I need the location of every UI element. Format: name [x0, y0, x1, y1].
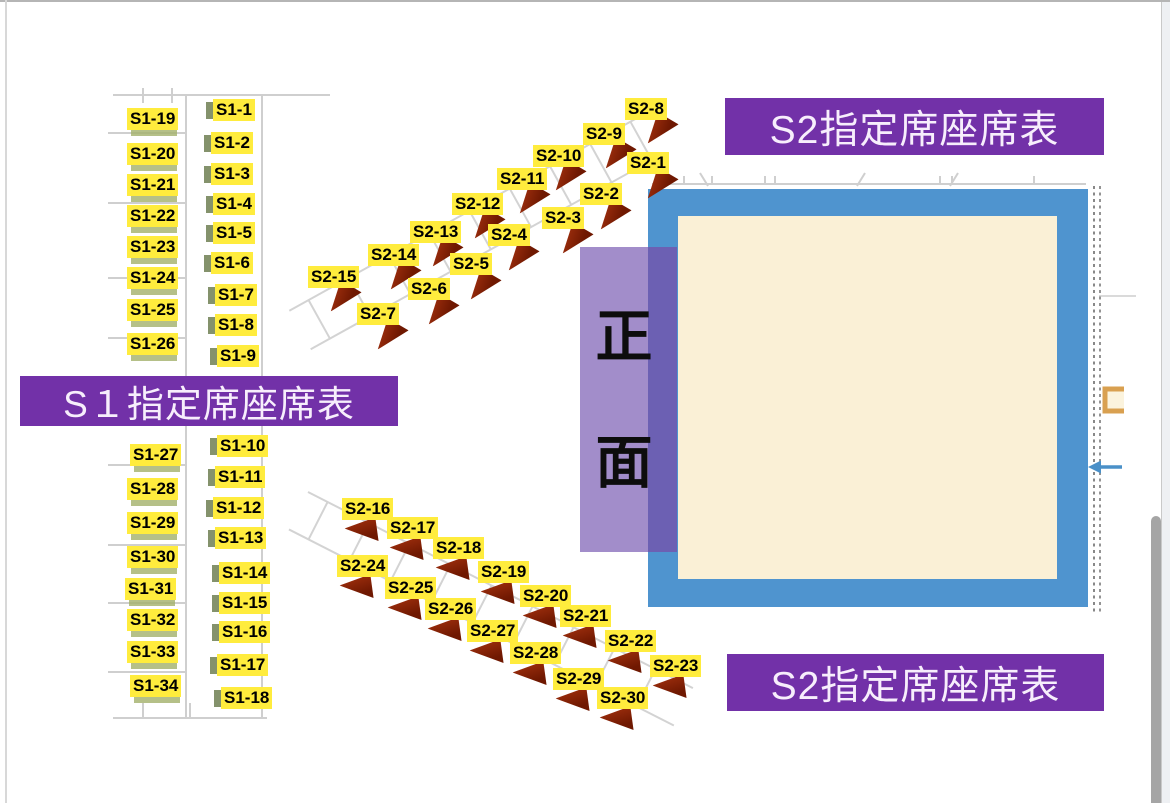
seat-label-s2-15: S2-15	[308, 266, 359, 288]
banner-s1-seating-chart: S１指定席座席表	[20, 376, 398, 426]
seat-label-s1-16: S1-16	[219, 621, 270, 643]
seat-label-s1-30: S1-30	[127, 546, 178, 568]
seat-label-s2-4: S2-4	[488, 224, 530, 246]
floorplan-seat-mark	[131, 129, 177, 136]
seat-label-s1-18: S1-18	[221, 687, 272, 709]
floorplan-seat-mark	[131, 354, 177, 361]
floorplan-seat-mark	[134, 465, 180, 472]
seat-label-s2-28: S2-28	[510, 642, 561, 664]
banner-s2-seating-chart-top: S2指定席座席表	[725, 98, 1104, 155]
seat-label-s2-19: S2-19	[478, 561, 529, 583]
seat-label-s2-18: S2-18	[433, 537, 484, 559]
floorplan-seat-mark	[131, 533, 177, 540]
seat-label-s2-10: S2-10	[533, 145, 584, 167]
seat-label-s2-26: S2-26	[425, 598, 476, 620]
seat-label-s2-25: S2-25	[385, 577, 436, 599]
seat-label-s1-31: S1-31	[125, 578, 176, 600]
seat-label-s1-23: S1-23	[127, 236, 178, 258]
seat-label-s1-21: S1-21	[127, 174, 178, 196]
seat-label-s2-23: S2-23	[650, 655, 701, 677]
floorplan-seat-mark	[131, 567, 177, 574]
seat-label-s1-4: S1-4	[213, 193, 255, 215]
seat-label-s1-15: S1-15	[219, 592, 270, 614]
seating-chart-page: 正 面 S1-19S1-20S1-21S1-22S1-23S1-24S1-25S…	[0, 0, 1170, 803]
floorplan-seat-mark	[131, 288, 177, 295]
seat-label-s1-32: S1-32	[127, 609, 178, 631]
seat-label-s1-20: S1-20	[127, 143, 178, 165]
seat-label-s2-7: S2-7	[357, 303, 399, 325]
floorplan-seat-mark	[131, 164, 177, 171]
seat-label-s1-24: S1-24	[127, 267, 178, 289]
floorplan-seat-mark	[131, 662, 177, 669]
seat-label-s1-3: S1-3	[211, 163, 253, 185]
seat-label-s1-29: S1-29	[127, 512, 178, 534]
seat-label-s1-6: S1-6	[211, 252, 253, 274]
seat-label-s1-33: S1-33	[127, 641, 178, 663]
floorplan-seat-mark	[131, 320, 177, 327]
banner-s2-seating-chart-bottom: S2指定席座席表	[727, 654, 1104, 711]
seat-label-s1-1: S1-1	[213, 99, 255, 121]
top-edge-line	[0, 0, 1170, 2]
seat-label-s2-9: S2-9	[583, 123, 625, 145]
entry-arrow-icon	[1088, 461, 1122, 474]
floorplan-seat-mark	[131, 257, 177, 264]
seat-label-s2-1: S2-1	[627, 152, 669, 174]
dotted-boundary-line	[1094, 186, 1100, 612]
stage-floor	[678, 216, 1057, 579]
door-icon	[1105, 389, 1124, 411]
seat-label-s1-9: S1-9	[217, 345, 259, 367]
seat-label-s1-8: S1-8	[215, 314, 257, 336]
seat-label-s2-16: S2-16	[342, 498, 393, 520]
seat-label-s1-27: S1-27	[130, 444, 181, 466]
seat-label-s2-30: S2-30	[597, 687, 648, 709]
seat-label-s1-13: S1-13	[215, 527, 266, 549]
seat-label-s2-3: S2-3	[542, 207, 584, 229]
scrollbar-track[interactable]	[1161, 0, 1170, 803]
seat-label-s1-17: S1-17	[217, 654, 268, 676]
seat-label-s1-11: S1-11	[215, 466, 265, 488]
floorplan-seat-mark	[131, 630, 177, 637]
seat-label-s1-26: S1-26	[127, 333, 178, 355]
seat-label-s1-34: S1-34	[130, 675, 181, 697]
seat-label-s2-8: S2-8	[625, 98, 667, 120]
seat-label-s1-5: S1-5	[213, 222, 255, 244]
seat-label-s1-12: S1-12	[213, 497, 264, 519]
seat-label-s2-22: S2-22	[605, 630, 656, 652]
scrollbar-thumb[interactable]	[1151, 516, 1161, 803]
floorplan-seat-mark	[131, 499, 177, 506]
seat-label-s2-21: S2-21	[560, 605, 611, 627]
floorplan-seat-mark	[129, 599, 175, 606]
seat-label-s1-7: S1-7	[215, 284, 257, 306]
seat-label-s1-19: S1-19	[127, 108, 178, 130]
seat-label-s2-14: S2-14	[368, 244, 419, 266]
seat-label-s2-20: S2-20	[520, 585, 571, 607]
seat-label-s1-28: S1-28	[127, 478, 178, 500]
floorplan-seat-mark	[131, 195, 177, 202]
stage-square	[648, 189, 1088, 607]
seat-label-s2-6: S2-6	[408, 278, 450, 300]
seat-label-s1-14: S1-14	[219, 562, 270, 584]
floorplan-seat-mark	[134, 696, 180, 703]
seat-label-s1-10: S1-10	[217, 435, 268, 457]
floorplan-seat-mark	[131, 226, 177, 233]
seat-label-s2-12: S2-12	[452, 193, 503, 215]
seat-label-s2-27: S2-27	[467, 620, 518, 642]
front-zone-overlap-strip	[648, 247, 677, 552]
seat-label-s2-5: S2-5	[450, 253, 492, 275]
seat-label-s2-13: S2-13	[410, 221, 461, 243]
seat-label-s1-25: S1-25	[127, 299, 178, 321]
seat-label-s1-22: S1-22	[127, 205, 178, 227]
left-edge-line	[5, 0, 7, 803]
front-zone-overlay: 正 面	[580, 247, 677, 552]
seat-label-s2-24: S2-24	[337, 555, 388, 577]
seat-label-s1-2: S1-2	[211, 132, 253, 154]
front-label-char-2: 面	[595, 435, 652, 492]
seat-label-s2-17: S2-17	[387, 517, 438, 539]
seat-label-s2-2: S2-2	[580, 183, 622, 205]
seat-label-s2-11: S2-11	[497, 168, 547, 190]
front-label-char-1: 正	[595, 309, 652, 366]
